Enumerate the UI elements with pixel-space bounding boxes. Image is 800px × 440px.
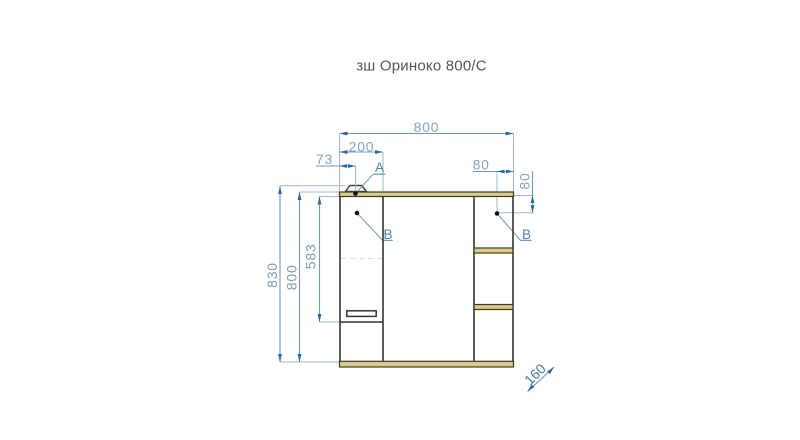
svg-text:200: 200	[349, 138, 375, 154]
svg-text:B: B	[522, 227, 531, 242]
svg-text:80: 80	[517, 172, 533, 189]
svg-text:73: 73	[316, 151, 333, 167]
svg-text:80: 80	[473, 157, 490, 173]
svg-text:B: B	[383, 227, 392, 242]
svg-text:зш Ориноко 800/С: зш Ориноко 800/С	[356, 58, 487, 75]
svg-text:830: 830	[264, 262, 280, 288]
svg-text:800: 800	[284, 264, 300, 290]
svg-text:160: 160	[521, 360, 549, 388]
svg-text:A: A	[375, 160, 384, 175]
svg-text:583: 583	[303, 243, 319, 269]
svg-text:800: 800	[414, 119, 440, 135]
